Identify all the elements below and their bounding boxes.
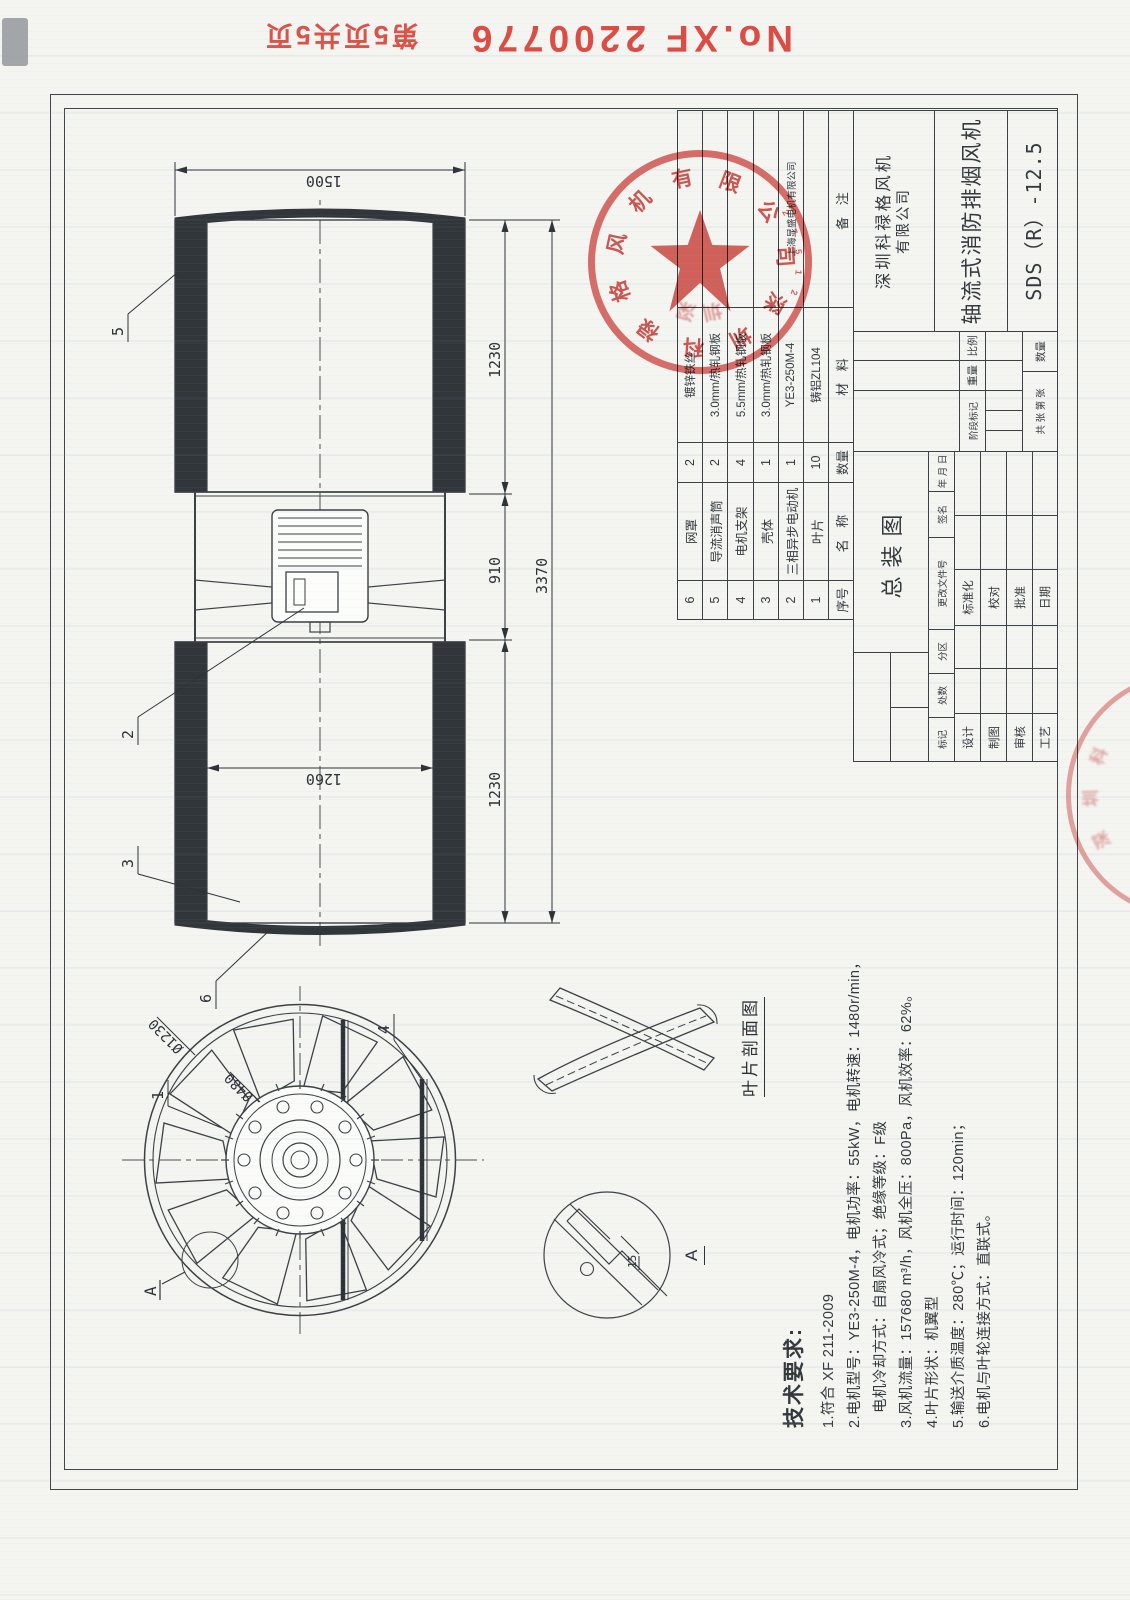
- model-number: SDS（R）-12.5: [1007, 110, 1058, 332]
- rev-label: 更改文件号: [928, 537, 955, 630]
- rev-label: 标记: [928, 717, 955, 762]
- blade-section-view: [534, 988, 717, 1093]
- part-qty: 1: [753, 442, 779, 483]
- callout-4: 4: [375, 1014, 422, 1080]
- stage-box: [985, 410, 1023, 431]
- part-name: 电机支架: [727, 482, 754, 581]
- tech-line: 5.输送介质温度：280℃；运行时间：120min；: [946, 868, 972, 1428]
- sig-cell: [954, 451, 981, 516]
- part-qty: 2: [702, 442, 728, 483]
- svg-text:Ø480: Ø480: [222, 1069, 257, 1104]
- tech-title: 技术要求:: [778, 868, 808, 1428]
- tech-line: 4.叶片形状：机翼型: [920, 868, 946, 1428]
- revision-cell: [890, 652, 929, 708]
- blade-section-label: 叶片剖面图: [736, 997, 765, 1097]
- sig-cell: [954, 625, 981, 669]
- seal-code-digit: 1: [793, 269, 803, 275]
- sig-cell: [1006, 625, 1033, 669]
- tech-line: 6.电机与叶轮连接方式：直联式。: [972, 868, 998, 1428]
- dim-impeller-outer: Ø1230: [146, 1015, 195, 1056]
- page-count-label: 第5页共5页: [263, 19, 419, 58]
- svg-text:1230: 1230: [486, 342, 504, 378]
- parts-header-name: 名 称: [828, 482, 854, 581]
- sig-cell: [1032, 451, 1058, 516]
- sig-cell: [1006, 451, 1033, 516]
- part-name: 三相异步电动机: [778, 482, 804, 581]
- detail-a-label: A: [682, 1246, 705, 1265]
- svg-text:1230: 1230: [486, 772, 504, 808]
- sig-label: 批准: [1006, 569, 1033, 626]
- scale-value-cell: [985, 331, 1023, 361]
- scanned-drawing-page: No.XF 2200776 第5页共5页: [0, 0, 1130, 1600]
- revision-cell: [853, 652, 891, 762]
- part-no: 3: [753, 580, 779, 620]
- stage-cell: [853, 360, 960, 391]
- sig-cell: [980, 668, 1007, 714]
- svg-text:Ø1230: Ø1230: [146, 1015, 187, 1056]
- company-line1: 深圳科禄格风机: [873, 153, 895, 290]
- sig-cell: [954, 668, 981, 714]
- seal-char: 司: [770, 245, 801, 268]
- sig-label: 标准化: [954, 569, 981, 626]
- part-no: 5: [702, 580, 728, 620]
- callout-2: 2: [119, 608, 304, 745]
- dim-1260: 1260: [207, 768, 433, 788]
- company-seal: 深 圳 科 禄 格 风 机 有 限 公 司 2 7 5 1 2 深 圳: [588, 150, 812, 374]
- rev-label: 处数: [928, 673, 955, 718]
- rev-label: 年 月 日: [928, 451, 955, 492]
- dim-impeller-hub: Ø480: [222, 1069, 260, 1104]
- sig-cell: [1006, 515, 1033, 570]
- company-name: 深圳科禄格风机 有限公司: [853, 110, 935, 332]
- parts-header-remark: 备 注: [828, 110, 854, 308]
- detail-a-view: 15: [544, 1192, 670, 1318]
- parts-header-qty: 数量: [828, 442, 854, 483]
- drawing-name: 总装图: [853, 451, 929, 653]
- tech-line: 2.电机型号：YE3-250M-4，电机功率：55kW，电机转速：1480r/m…: [842, 868, 868, 1428]
- title-block: 总装图 标记 处数 分区 更改文件号 签名 年 月 日 设计 标准化 制图 校对…: [853, 110, 1058, 762]
- svg-text:1500: 1500: [306, 172, 342, 190]
- document-number: No.XF 2200776: [467, 17, 793, 59]
- svg-text:1: 1: [149, 1091, 167, 1100]
- weight-value-cell: [985, 360, 1023, 391]
- part-qty: 1: [778, 442, 804, 483]
- sig-label: 制图: [980, 713, 1007, 762]
- svg-text:1260: 1260: [306, 770, 342, 788]
- sig-cell: [1032, 668, 1058, 714]
- svg-text:15: 15: [626, 1255, 639, 1268]
- svg-text:2: 2: [119, 730, 137, 739]
- sheet-count-label: 共 张 第 张: [1022, 371, 1058, 452]
- scale-label: 比例: [959, 331, 986, 361]
- sig-label: 校对: [980, 569, 1007, 626]
- qty-label: 数量: [1022, 331, 1058, 372]
- svg-text:6: 6: [197, 994, 215, 1003]
- dim-chain: 1230 910 1230 3370: [469, 220, 560, 923]
- callout-5: 5: [109, 272, 178, 342]
- svg-text:910: 910: [486, 557, 504, 584]
- scan-artifact: [2, 18, 28, 66]
- rev-label: 签名: [928, 491, 955, 538]
- part-qty: 2: [677, 442, 703, 483]
- parts-header-material: 材 料: [828, 307, 854, 443]
- sig-label: 设计: [954, 713, 981, 762]
- page-number-stamp: No.XF 2200776 第5页共5页: [138, 2, 793, 74]
- parts-header-no: 序号: [828, 580, 854, 620]
- product-name: 轴流式消防排烟风机: [934, 110, 1008, 332]
- sig-cell: [954, 515, 981, 570]
- side-view: 1500 1260 1230 910: [109, 162, 560, 1009]
- stage-cell: [853, 331, 960, 361]
- margin-partial-seal: 深 圳 科: [1066, 672, 1130, 918]
- part-name: 壳体: [753, 482, 779, 581]
- tech-line: 电机冷却方式：自扇风冷式；绝缘等级：F级: [868, 868, 894, 1428]
- dim-1500: 1500: [175, 162, 465, 216]
- margin-seal-char: 圳: [1076, 789, 1102, 807]
- sig-cell: [980, 515, 1007, 570]
- part-name: 导流消声筒: [702, 482, 728, 581]
- svg-text:5: 5: [109, 327, 127, 336]
- callout-6: 6: [197, 928, 272, 1009]
- sig-cell: [980, 451, 1007, 516]
- svg-text:3370: 3370: [533, 558, 551, 594]
- sig-cell: [1032, 625, 1058, 669]
- sig-label: 日期: [1032, 569, 1058, 626]
- part-name: 网罩: [677, 482, 703, 581]
- part-no: 6: [677, 580, 703, 620]
- sig-cell: [1032, 515, 1058, 570]
- technical-requirements: 技术要求: 1.符合 XF 211-2009 2.电机型号：YE3-250M-4…: [778, 868, 998, 1428]
- sig-cell: [1006, 668, 1033, 714]
- part-no: 1: [803, 580, 829, 620]
- impeller-front-view: A Ø1230 Ø480 1 4: [122, 986, 484, 1334]
- sig-label: 工艺: [1032, 713, 1058, 762]
- seal-char: 科: [682, 332, 705, 364]
- part-no: 2: [778, 580, 804, 620]
- part-no: 4: [727, 580, 754, 620]
- stage-mark-label: 阶段标记: [959, 390, 986, 452]
- tech-line: 3.风机流量：157680 m³/h，风机全压：800Pa，风机效率：62%。: [894, 868, 920, 1428]
- sig-label: 审核: [1006, 713, 1033, 762]
- revision-cell: [890, 707, 929, 762]
- stage-box: [985, 430, 1023, 452]
- svg-text:A: A: [141, 1286, 160, 1296]
- stage-cell: [853, 390, 960, 452]
- part-qty: 10: [803, 442, 829, 483]
- company-line2: 有限公司: [895, 188, 915, 254]
- part-name: 叶片: [803, 482, 829, 581]
- seal-code-digit: 5: [793, 249, 803, 255]
- part-qty: 4: [727, 442, 754, 483]
- weight-label: 重量: [959, 360, 986, 391]
- rev-label: 分区: [928, 629, 955, 674]
- stage-box: [985, 390, 1023, 411]
- motor: [272, 510, 368, 632]
- sig-cell: [980, 625, 1007, 669]
- drawing-sheet: 1500 1260 1230 910: [64, 108, 1058, 1468]
- tech-line: 1.符合 XF 211-2009: [816, 868, 842, 1428]
- svg-text:3: 3: [119, 859, 137, 868]
- svg-text:4: 4: [375, 1025, 393, 1034]
